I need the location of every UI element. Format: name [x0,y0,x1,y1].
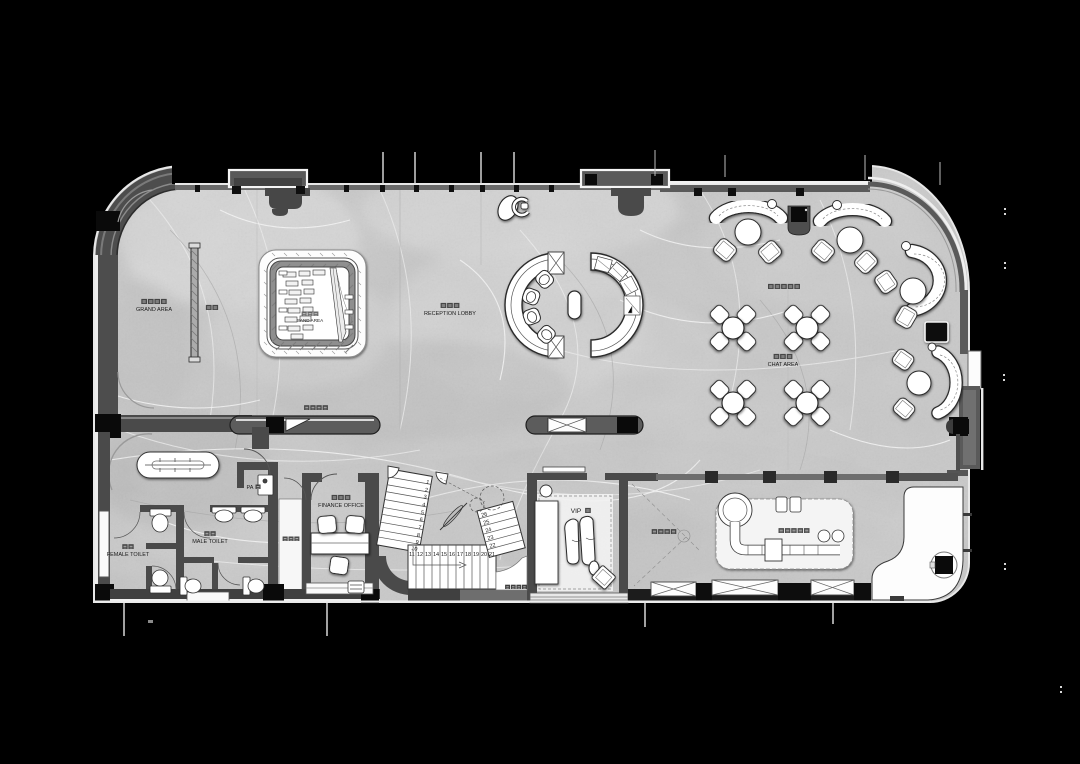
svg-text:21: 21 [489,552,495,558]
svg-text:12: 12 [417,552,423,558]
svg-text:FEMALE TOILET: FEMALE TOILET [107,552,150,558]
svg-text:13: 13 [425,552,431,558]
svg-text:14: 14 [433,552,439,558]
svg-text:MALE TOILET: MALE TOILET [192,539,228,545]
svg-text:SAND AREA: SAND AREA [297,318,324,323]
svg-text:16: 16 [449,552,455,558]
svg-text:PA: PA [247,485,254,491]
svg-text:17: 17 [457,552,463,558]
svg-text:18: 18 [465,552,471,558]
svg-text:RECEPTION LOBBY: RECEPTION LOBBY [424,311,476,317]
svg-text:GRAND AREA: GRAND AREA [136,307,172,313]
svg-text:20: 20 [481,552,487,558]
svg-text:VIP: VIP [571,508,581,515]
svg-text:19: 19 [473,552,479,558]
svg-text:FINANCE OFFICE: FINANCE OFFICE [318,503,364,509]
svg-text:11: 11 [409,552,415,558]
svg-text:CHAT AREA: CHAT AREA [768,362,799,368]
svg-text:15: 15 [441,552,447,558]
